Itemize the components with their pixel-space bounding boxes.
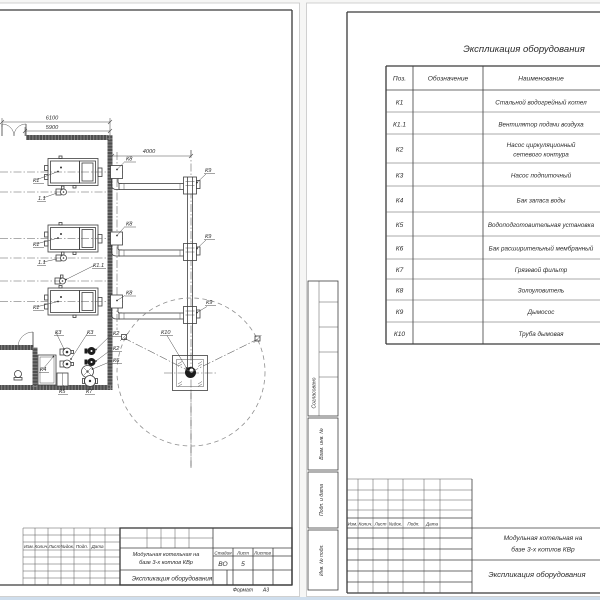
- dim-4000-label: 4000: [143, 149, 156, 155]
- row-pos: К4: [396, 198, 404, 205]
- doc-title: Экспликация оборудования: [488, 570, 585, 579]
- callout-k11: 1.1: [38, 260, 46, 266]
- rev-col-ndok: №док.: [61, 544, 75, 549]
- col-header-pos: Поз.: [393, 76, 406, 83]
- project-title-line1: Модульная котельная на: [504, 534, 583, 542]
- margin-label-soglasovano: Согласовано: [312, 377, 318, 408]
- project-title-line2: базе 3-х котлов КВр: [139, 560, 193, 566]
- stage-label: Стадия: [214, 551, 232, 556]
- callout-k9: К9: [205, 168, 211, 174]
- callout-k3: К3: [55, 330, 62, 336]
- row-name: Вентилятор подачи воздуха: [498, 121, 584, 129]
- callout-k1: К1: [33, 242, 39, 248]
- callout-k3: К3: [87, 330, 94, 336]
- callout-k6: К6: [113, 358, 120, 364]
- drain-pump: [15, 371, 22, 378]
- callout-k1: К1: [33, 305, 39, 311]
- callout-k8: К8: [126, 157, 133, 163]
- rev-col-ndok: №док.: [389, 522, 403, 527]
- callout-k9: К9: [205, 234, 211, 240]
- callout-k2: К2: [113, 331, 120, 337]
- dim-6100-label: 6100: [46, 116, 59, 122]
- callout-k8: К8: [126, 222, 133, 228]
- rev-col-izm: Изм.: [24, 544, 34, 549]
- rev-col-list: Лист: [374, 522, 387, 527]
- row-name: Труба дымовая: [519, 330, 565, 338]
- row-name: Водоподготовительная установка: [488, 221, 595, 229]
- sheet-label: Лист: [236, 551, 249, 556]
- callout-k4: К4: [40, 367, 46, 373]
- dim-5900-label: 5900: [46, 125, 59, 131]
- callout-k5: К5: [59, 389, 66, 395]
- doc-title: Экспликация оборудования: [132, 575, 213, 583]
- row-pos: К10: [394, 331, 406, 338]
- sheets-label: Листов: [253, 551, 271, 556]
- row-name: Золоуловитель: [518, 288, 564, 295]
- rev-col-list: Лист: [48, 544, 61, 549]
- callout-k10: К10: [161, 330, 171, 336]
- row-pos: К9: [396, 309, 404, 316]
- rev-col-izm: Изм.: [348, 522, 358, 527]
- row-name: Насос подпиточный: [511, 172, 572, 180]
- spec-title: Экспликация оборудования: [463, 44, 585, 55]
- project-title-line2: базе 3-х котлов КВр: [511, 546, 575, 554]
- callout-k2: К2: [113, 346, 120, 352]
- row-pos: К2: [396, 147, 404, 154]
- callout-k7: К7: [86, 389, 93, 395]
- rev-col-kolich: Колич.: [359, 522, 373, 527]
- callout-k8: К8: [126, 291, 133, 297]
- row-name: Стальной водогрейный котел: [495, 99, 587, 107]
- callout-k11: 1.1: [38, 196, 46, 202]
- col-header-naimenovanie: Наименование: [518, 76, 564, 83]
- row-pos: К8: [396, 288, 404, 295]
- row-name: сетевого контура: [513, 152, 569, 159]
- row-name: Бак запаса воды: [517, 197, 566, 205]
- row-pos: К1: [396, 100, 404, 107]
- callout-k11: К1.1: [93, 263, 104, 269]
- project-title-line1: Модульная котельная на: [133, 552, 200, 558]
- stage-value: ВО: [218, 561, 227, 568]
- rev-col-kolich: Колич.: [35, 544, 49, 549]
- margin-label-inv-podl: Инв. № подл.: [319, 544, 325, 576]
- row-pos: К1.1: [393, 122, 406, 129]
- format-label: Формат: [233, 588, 253, 594]
- callout-k9: К9: [206, 300, 212, 306]
- callout-k1: К1: [33, 178, 39, 184]
- rev-col-data: Дата: [90, 544, 104, 549]
- row-name: Дымосос: [527, 309, 556, 316]
- format-value: А3: [262, 588, 269, 594]
- rev-col-podp: Подп.: [407, 522, 419, 527]
- rev-col-data: Дата: [425, 522, 439, 527]
- row-name: Грязевой фильтр: [515, 266, 568, 274]
- drawing-svg: 6100 5900 4000: [0, 0, 600, 600]
- row-pos: К5: [396, 222, 404, 229]
- row-name: Насос циркуляционный: [507, 141, 576, 149]
- row-name: Бак расширительный мембранный: [489, 245, 594, 253]
- cad-drawing-canvas: 6100 5900 4000: [0, 0, 600, 600]
- margin-label-podp-data: Подп. и дата: [319, 484, 325, 516]
- margin-label-vzam-inv: Взам. инв. №: [319, 428, 325, 460]
- sheet-number: 5: [241, 561, 245, 568]
- row-pos: К7: [396, 267, 404, 274]
- row-pos: К3: [396, 173, 404, 180]
- col-header-oboznachenie: Обозначение: [428, 75, 469, 83]
- row-pos: К6: [396, 246, 404, 253]
- rev-col-podp: Подп.: [76, 544, 88, 549]
